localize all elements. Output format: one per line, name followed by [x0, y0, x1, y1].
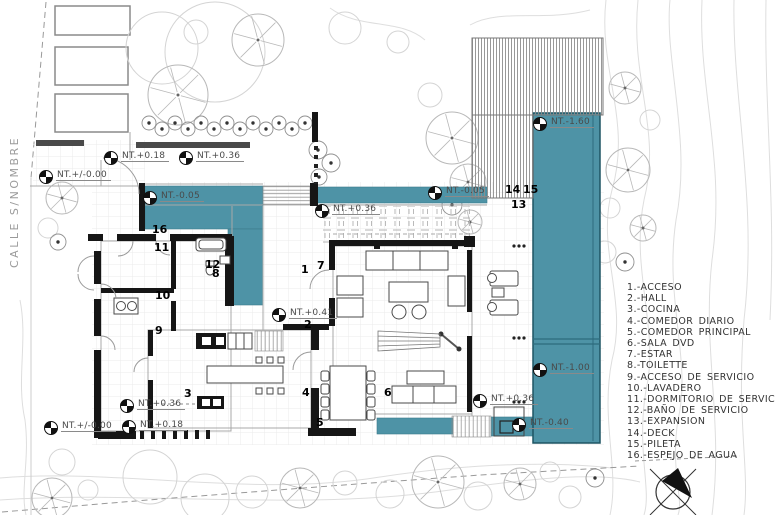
room-number-7: 7: [317, 261, 325, 271]
room-number-3: 3: [184, 389, 192, 399]
legend-item: 4.-COMEDOR DIARIO: [627, 316, 776, 327]
legend-item: 6.-SALA DVD: [627, 338, 776, 349]
legend-item: 1.-ACCESO: [627, 282, 776, 293]
legend-item: 3.-COCINA: [627, 304, 776, 315]
room-number-15: 15: [523, 185, 538, 195]
legend-item: 10.-LAVADERO: [627, 383, 776, 394]
legend-item: 13.-EXPANSION: [627, 416, 776, 427]
room-number-4: 4: [302, 388, 310, 398]
room-number-11: 11: [154, 243, 169, 253]
expansion-paving: [318, 206, 470, 243]
legend-item: 8.-TOILETTE: [627, 360, 776, 371]
floor-plan-canvas: CALLE S/NOMBRE 1.-ACCESO2.-HALL3.-COCINA…: [0, 0, 776, 515]
legend-item: 5.-COMEDOR PRINCIPAL: [627, 327, 776, 338]
pool-pileta: [533, 113, 600, 443]
room-number-1: 1: [301, 265, 309, 275]
legend-item: 7.-ESTAR: [627, 349, 776, 360]
legend-item: 9.-ACCESO DE SERVICIO: [627, 372, 776, 383]
room-number-5: 5: [316, 418, 324, 428]
legend-item: 15.-PILETA: [627, 439, 776, 450]
room-number-9: 9: [155, 326, 163, 336]
legend-item: 11.-DORMITORIO DE SERVICIO: [627, 394, 776, 405]
room-number-6: 6: [384, 388, 392, 398]
north-arrow-icon: [650, 468, 696, 515]
room-number-14: 14: [505, 185, 520, 195]
parking-pads: [55, 6, 130, 132]
legend-item: 14.-DECK: [627, 428, 776, 439]
room-legend: 1.-ACCESO2.-HALL3.-COCINA4.-COMEDOR DIAR…: [627, 282, 776, 461]
room-number-12: 12: [205, 260, 220, 270]
street-label: CALLE S/NOMBRE: [8, 136, 21, 268]
room-number-10: 10: [155, 291, 170, 301]
legend-item: 2.-HALL: [627, 293, 776, 304]
legend-item: 12.-BAÑO DE SERVICIO: [627, 405, 776, 416]
room-number-13: 13: [511, 200, 526, 210]
room-number-16: 16: [152, 225, 167, 235]
room-number-2: 2: [304, 320, 312, 330]
legend-item: 16.-ESPEJO DE AGUA: [627, 450, 776, 461]
